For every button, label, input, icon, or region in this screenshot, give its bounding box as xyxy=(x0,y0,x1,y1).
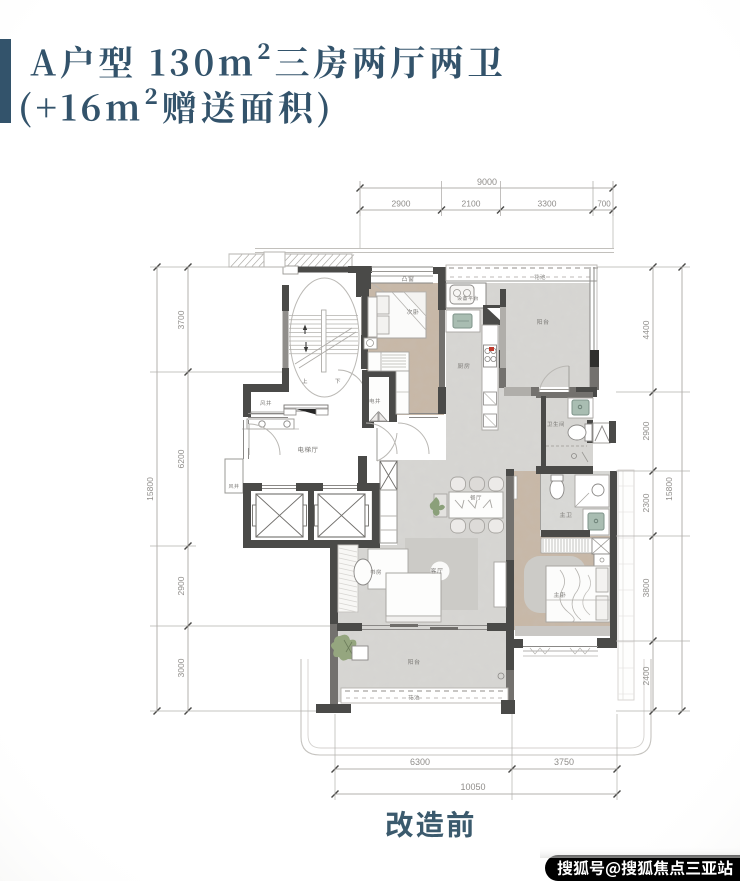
svg-text:3700: 3700 xyxy=(176,310,186,329)
svg-text:2900: 2900 xyxy=(176,576,186,595)
svg-text:2300: 2300 xyxy=(641,493,651,512)
svg-text:3800: 3800 xyxy=(641,578,651,597)
svg-text:6200: 6200 xyxy=(176,449,186,468)
svg-text:2900: 2900 xyxy=(641,421,651,440)
svg-text:2100: 2100 xyxy=(462,199,481,209)
svg-text:4400: 4400 xyxy=(641,320,651,339)
svg-text:10050: 10050 xyxy=(460,782,485,792)
svg-text:2900: 2900 xyxy=(392,199,411,209)
svg-text:15800: 15800 xyxy=(145,477,155,501)
svg-text:2400: 2400 xyxy=(641,666,651,685)
svg-text:3750: 3750 xyxy=(554,757,574,767)
svg-text:3000: 3000 xyxy=(176,658,186,677)
svg-text:9000: 9000 xyxy=(477,177,497,187)
svg-text:3300: 3300 xyxy=(538,199,557,209)
svg-text:700: 700 xyxy=(597,200,611,209)
svg-text:6300: 6300 xyxy=(410,757,430,767)
svg-text:15800: 15800 xyxy=(664,477,674,501)
